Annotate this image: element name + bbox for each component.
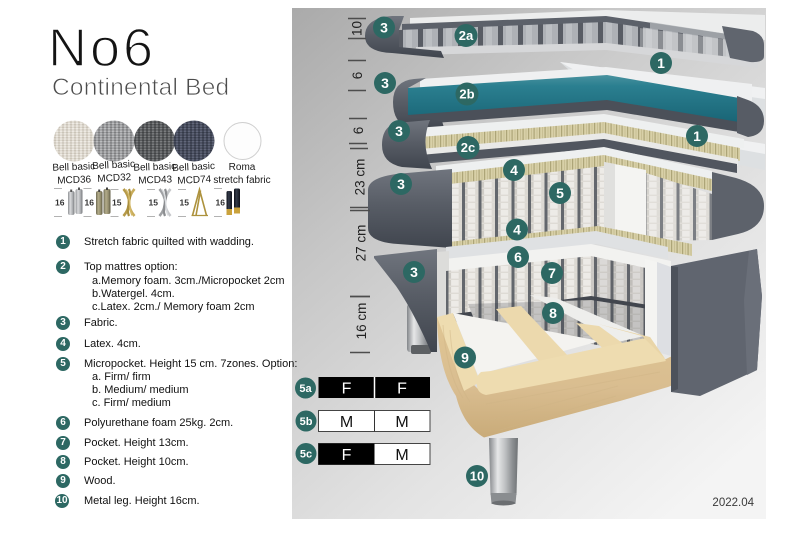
svg-text:3: 3 — [380, 20, 388, 36]
svg-text:10: 10 — [350, 21, 365, 36]
svg-text:3: 3 — [381, 75, 389, 91]
svg-text:7: 7 — [548, 265, 556, 281]
svg-text:5a: 5a — [299, 383, 312, 395]
svg-text:4: 4 — [510, 162, 518, 178]
svg-text:6: 6 — [350, 72, 365, 80]
svg-text:6: 6 — [514, 249, 522, 265]
svg-text:F: F — [397, 381, 407, 398]
svg-text:9: 9 — [461, 350, 469, 366]
svg-text:16: 16 — [216, 198, 226, 208]
svg-text:16 cm: 16 cm — [354, 303, 369, 340]
svg-text:2b: 2b — [459, 87, 474, 102]
svg-text:23 cm: 23 cm — [353, 159, 368, 196]
svg-text:F: F — [342, 447, 352, 464]
svg-text:M: M — [395, 447, 408, 464]
svg-text:5b: 5b — [300, 416, 313, 428]
svg-text:1: 1 — [693, 128, 701, 144]
svg-text:3: 3 — [397, 176, 405, 192]
svg-text:2a: 2a — [459, 28, 474, 43]
svg-text:3: 3 — [395, 123, 403, 139]
svg-text:6: 6 — [351, 127, 366, 135]
svg-text:2022.04: 2022.04 — [712, 497, 754, 509]
svg-text:16: 16 — [55, 198, 65, 208]
svg-text:27 cm: 27 cm — [354, 225, 369, 262]
svg-text:2c: 2c — [461, 140, 475, 155]
svg-text:3: 3 — [410, 264, 418, 280]
svg-text:M: M — [395, 414, 408, 431]
svg-text:5: 5 — [556, 185, 564, 201]
svg-text:15: 15 — [112, 198, 122, 208]
svg-text:F: F — [342, 381, 352, 398]
svg-text:15: 15 — [149, 198, 159, 208]
svg-text:5c: 5c — [300, 449, 312, 461]
svg-text:10: 10 — [470, 469, 484, 484]
svg-text:15: 15 — [180, 198, 190, 208]
svg-text:4: 4 — [513, 222, 521, 238]
svg-text:1: 1 — [657, 55, 665, 71]
svg-text:M: M — [340, 414, 353, 431]
svg-text:16: 16 — [85, 198, 95, 208]
svg-text:8: 8 — [549, 305, 557, 321]
